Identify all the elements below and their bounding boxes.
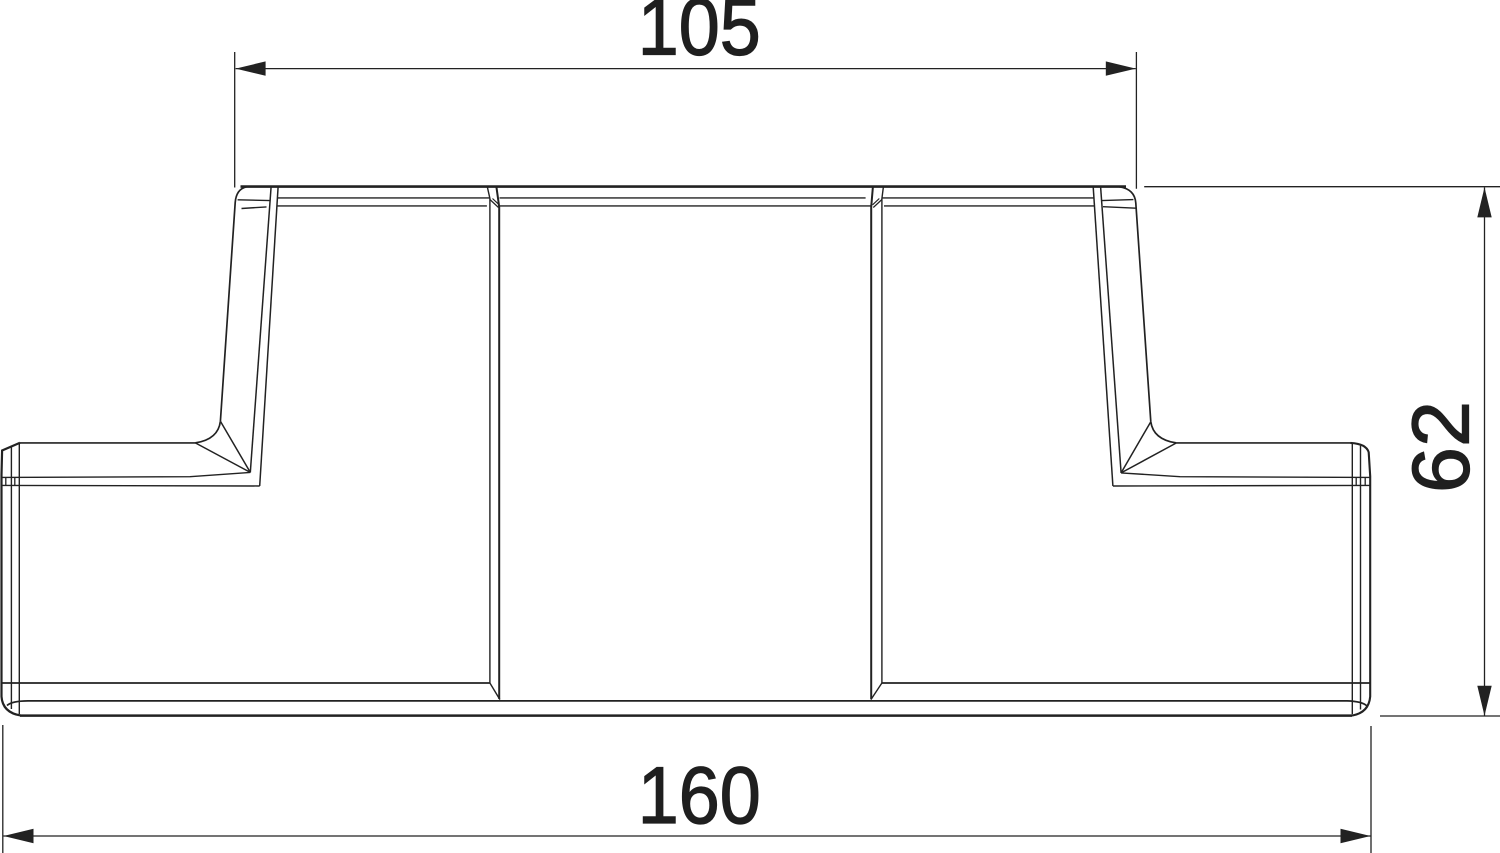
svg-text:62: 62 <box>1397 401 1487 493</box>
svg-text:160: 160 <box>638 751 761 841</box>
svg-text:105: 105 <box>638 0 761 73</box>
